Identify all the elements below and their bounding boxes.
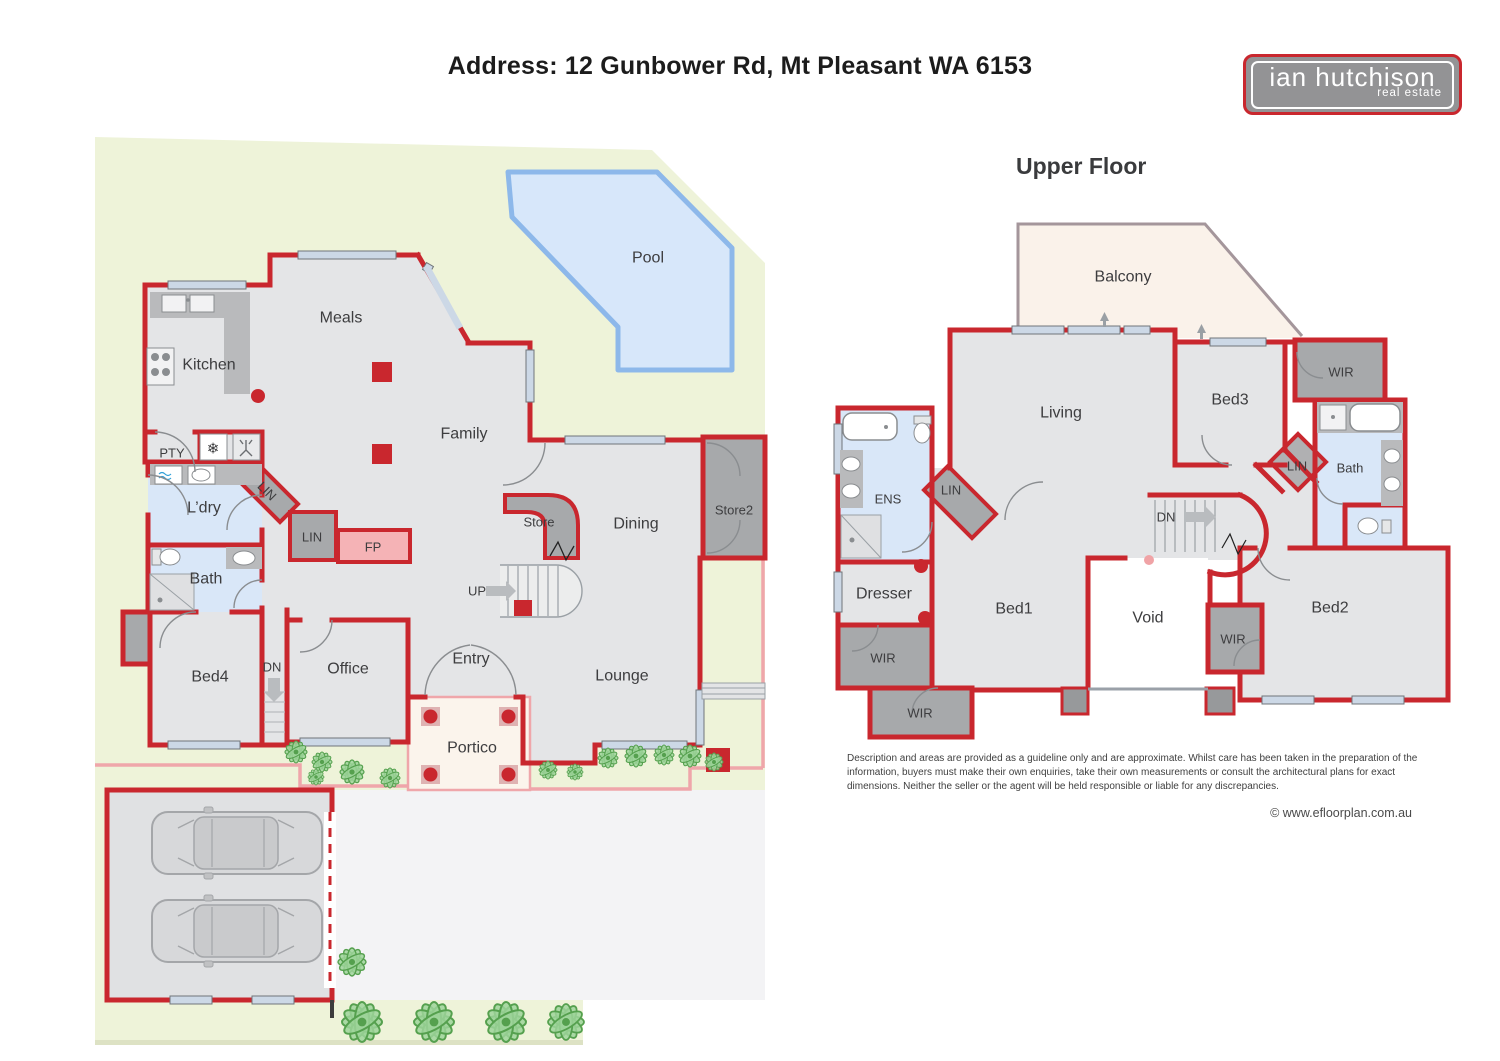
room-label-meals: Meals <box>320 310 363 327</box>
floorplan-drawing: ❄ <box>0 0 1500 1061</box>
room-label-pty: PTY <box>159 446 185 461</box>
floorplan-page: Address: 12 Gunbower Rd, Mt Pleasant WA … <box>0 0 1500 1061</box>
room-label-wir-top: WIR <box>1328 365 1353 380</box>
room-label-dining: Dining <box>613 516 658 533</box>
car <box>152 807 322 879</box>
room-label-office: Office <box>327 661 369 678</box>
room-label-kitchen: Kitchen <box>182 357 235 374</box>
room-label-wir-mid: WIR <box>1220 632 1245 647</box>
room-label-bath: Bath <box>190 571 223 588</box>
disclaimer-text: Description and areas are provided as a … <box>847 752 1419 793</box>
room-label-bed3: Bed3 <box>1211 392 1248 409</box>
copyright-text: © www.efloorplan.com.au <box>1270 806 1412 820</box>
driveway <box>334 790 765 1000</box>
room-label-bath-upper: Bath <box>1337 461 1364 476</box>
room-label-pool: Pool <box>632 250 664 267</box>
room-label-wir-left: WIR <box>870 651 895 666</box>
room-label-bed4: Bed4 <box>191 669 228 686</box>
room-label-dresser: Dresser <box>856 586 913 603</box>
room-label-ldry: L’dry <box>187 500 221 517</box>
freezer-icon: ❄ <box>207 441 220 458</box>
room-label-bed1: Bed1 <box>995 601 1032 618</box>
room-label-store2: Store2 <box>715 503 753 518</box>
upper-floor-plan: Balcony Living Bed3 WIR ENS LIN LIN Bath… <box>834 224 1448 737</box>
room-label-fp: FP <box>365 540 382 555</box>
room-label-family: Family <box>440 426 487 443</box>
room-label-living: Living <box>1040 405 1082 422</box>
room-label-lounge: Lounge <box>595 668 648 685</box>
room-label-wir-bottom: WIR <box>907 706 932 721</box>
room-label-up: UP <box>468 584 486 599</box>
balcony-floor <box>1018 224 1302 338</box>
car <box>152 895 322 967</box>
room-label-void: Void <box>1132 610 1163 627</box>
room-label-portico: Portico <box>447 740 497 757</box>
laundry-fixtures <box>150 464 262 485</box>
lower-floor-plan: ❄ <box>95 137 765 1045</box>
room-label-bed2: Bed2 <box>1311 600 1348 617</box>
room-label-lin-right: LIN <box>1287 459 1307 474</box>
room-label-entry: Entry <box>452 651 489 668</box>
room-label-ens: ENS <box>875 492 902 507</box>
room-label-dn: DN <box>263 660 282 675</box>
room-label-balcony: Balcony <box>1095 269 1152 286</box>
room-label-store: Store <box>523 515 554 530</box>
room-label-lin-closet: LIN <box>302 530 322 545</box>
room-label-dn-upper: DN <box>1157 510 1176 525</box>
room-label-lin-left: LIN <box>941 483 961 498</box>
office-floor <box>287 620 408 742</box>
